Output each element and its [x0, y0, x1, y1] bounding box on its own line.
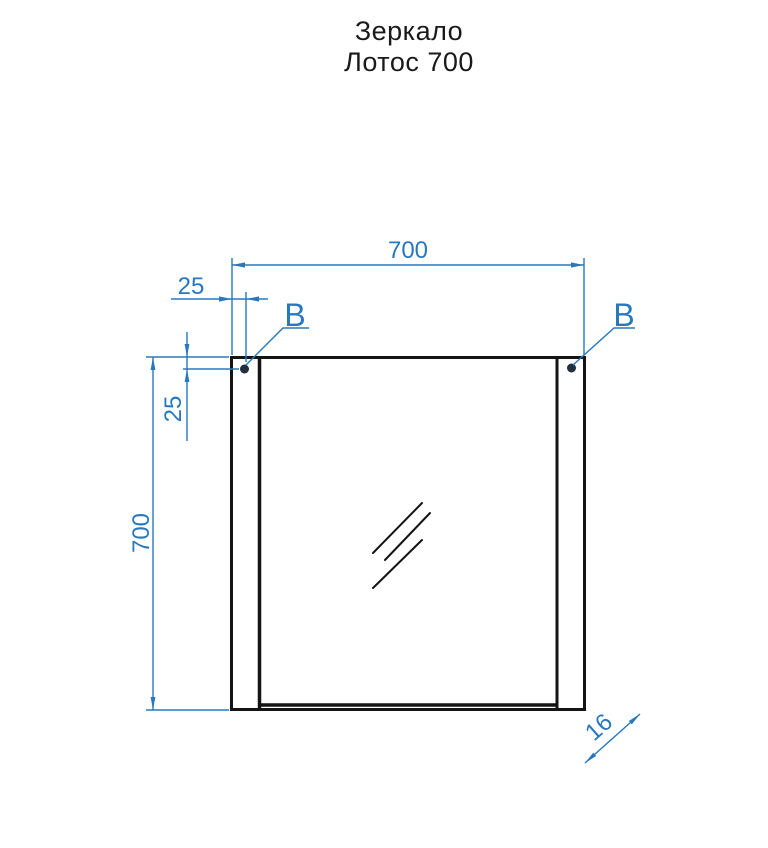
dim-arrow — [151, 357, 156, 370]
dim-arrow — [629, 714, 640, 724]
dim-mount-offset-horizontal-value: 25 — [178, 273, 205, 300]
dim-arrow — [585, 753, 596, 763]
dim-mount-offset-vertical: 25 — [160, 332, 239, 441]
mount-dot-left — [240, 365, 249, 374]
leader-line — [246, 328, 309, 365]
drawing-canvas: 700 25 700 25 — [0, 0, 768, 848]
dim-arrow — [185, 344, 190, 357]
mount-dot-right — [567, 364, 576, 373]
leader-line — [573, 328, 635, 365]
dim-overall-height-value: 700 — [128, 513, 155, 553]
glass-reflection-marks — [373, 503, 430, 588]
callout-mount-left: B — [246, 297, 309, 365]
mount-label-left: B — [284, 297, 305, 333]
dim-arrow — [571, 262, 584, 267]
callout-mount-right: B — [573, 297, 635, 365]
dim-arrow — [232, 262, 245, 267]
dim-panel-thickness-value: 16 — [580, 708, 618, 746]
dim-arrow — [185, 369, 190, 382]
mount-label-right: B — [613, 297, 634, 333]
dim-arrow — [151, 697, 156, 710]
dim-arrow — [219, 296, 232, 301]
mirror-outline — [232, 358, 585, 710]
dim-arrow — [246, 296, 259, 301]
drawing-page: Зеркало Лотос 700 700 — [0, 0, 768, 848]
mirror-front-view — [232, 357, 585, 710]
dim-overall-width: 700 — [232, 237, 584, 355]
dim-panel-thickness: 16 — [580, 708, 640, 763]
dim-overall-width-value: 700 — [388, 237, 428, 264]
dim-mount-offset-vertical-value: 25 — [160, 396, 187, 423]
